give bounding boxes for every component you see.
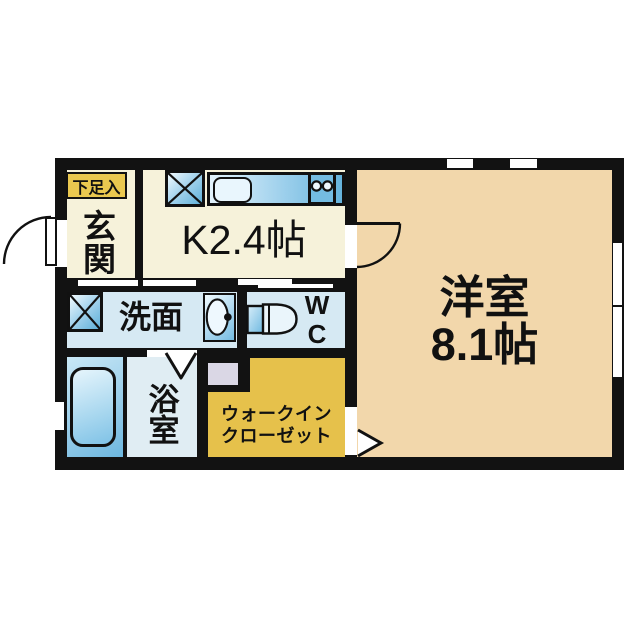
wic-label-line2: クローゼット (206, 425, 347, 447)
hall-opening-kitchen (143, 280, 196, 286)
appliance-space-icon (165, 170, 205, 207)
entrance-door-leaf (45, 217, 57, 266)
window-right-upper (613, 243, 622, 305)
washer-space-icon (67, 292, 103, 332)
floor-plan: 下足入 玄関 K2.4帖 洗面 W C 浴室 ウォークイン クローゼット 洋室 … (0, 0, 640, 640)
vanity-sink-icon (203, 293, 236, 342)
toilet-label: W C (296, 291, 338, 349)
wic-label-line1: ウォークイン (206, 403, 347, 425)
toilet-label-line1: W (296, 291, 338, 320)
shoe-cabinet-label: 下足入 (66, 172, 127, 199)
kitchen-sink-icon (213, 177, 252, 203)
toilet-label-line2: C (296, 320, 338, 349)
stove-icon (308, 172, 336, 205)
shoe-cabinet-text: 下足入 (72, 174, 120, 198)
bathtub-icon (70, 367, 116, 447)
kitchen-label: K2.4帖 (143, 220, 345, 261)
western-room-label-line1: 洋室 (357, 274, 612, 321)
western-room-label: 洋室 8.1帖 (357, 274, 612, 369)
bathroom-label: 浴室 (143, 373, 179, 455)
entrance-door-swing-icon (4, 217, 51, 264)
walk-in-closet-label: ウォークイン クローゼット (206, 403, 347, 448)
window-left-bath (55, 402, 64, 430)
toilet-door-opening-2 (258, 284, 333, 288)
pipe-space-square (208, 363, 238, 385)
bath-door-opening (147, 350, 197, 357)
window-top-1 (447, 159, 473, 168)
window-right-lower (613, 307, 622, 377)
kitchen-room-door-opening (345, 225, 357, 268)
entrance-label: 玄関 (76, 203, 118, 281)
western-room-label-line2: 8.1帖 (357, 321, 612, 368)
window-top-2 (510, 159, 537, 168)
washroom-label: 洗面 (105, 301, 197, 333)
